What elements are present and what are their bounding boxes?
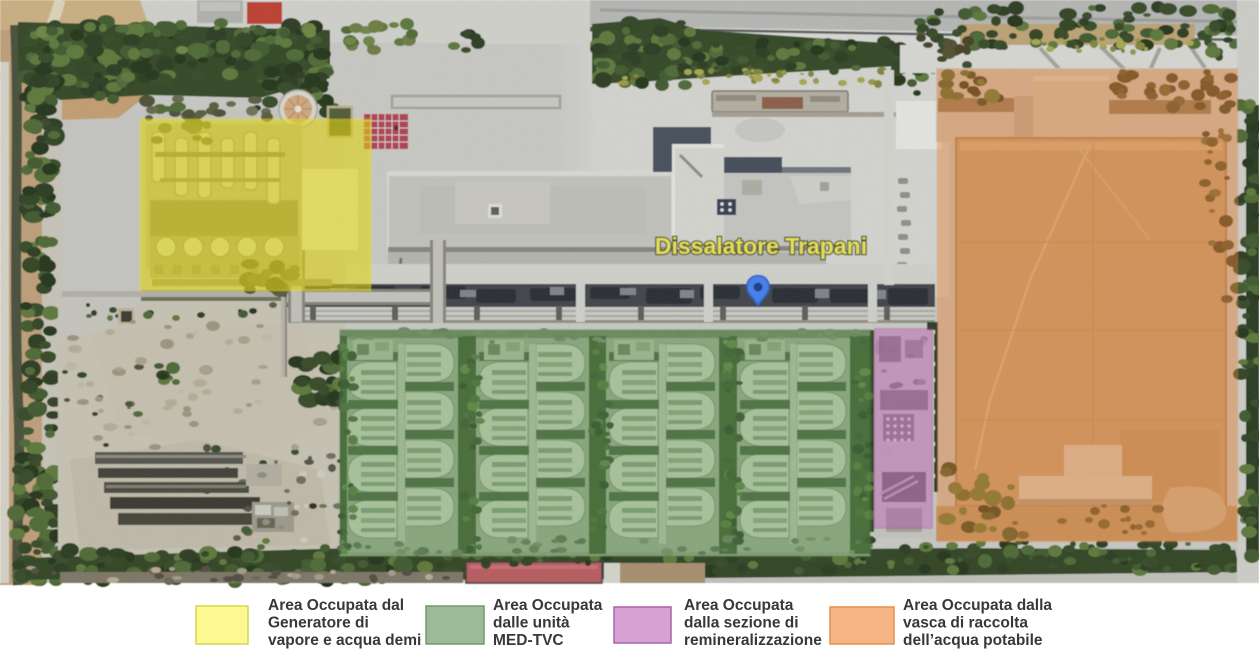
svg-text:Area Occupatadalle unitàMED-TV: Area Occupatadalle unitàMED-TVC	[493, 597, 603, 649]
svg-text:Area Occupata dalGeneratore di: Area Occupata dalGeneratore divapore e a…	[268, 597, 421, 649]
svg-text:Area Occupatadalla sezione dir: Area Occupatadalla sezione diremineraliz…	[684, 597, 822, 649]
svg-text:Area Occupata dallavasca di ra: Area Occupata dallavasca di raccoltadell…	[903, 597, 1052, 649]
